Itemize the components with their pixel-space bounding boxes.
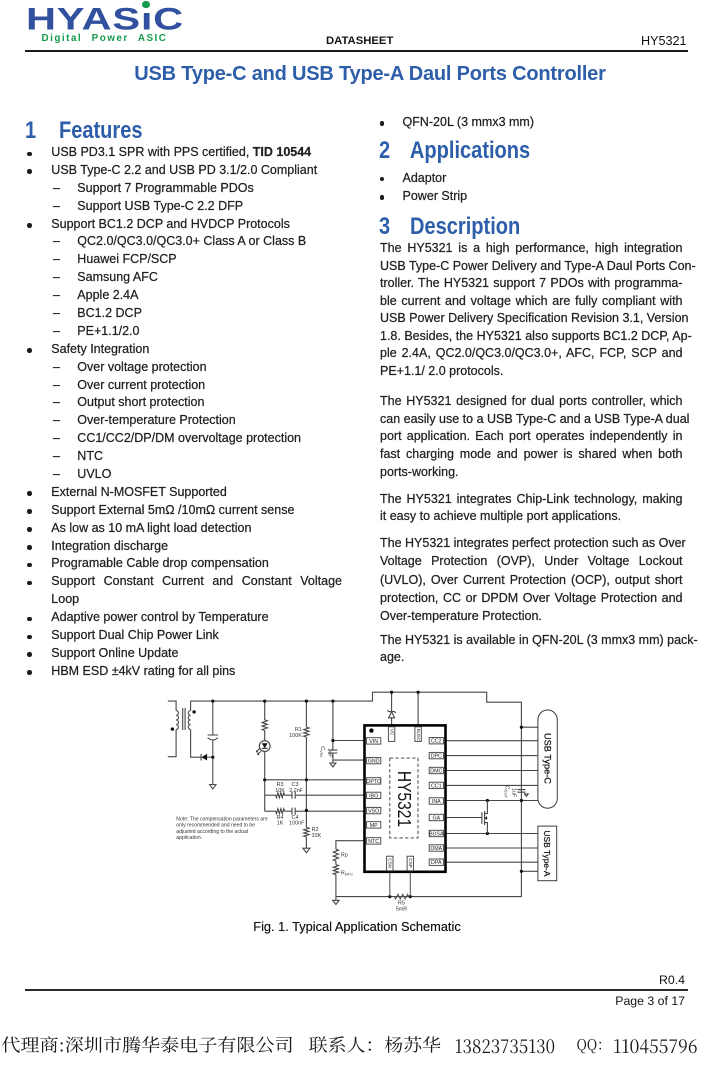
- svg-text:100nF: 100nF: [289, 821, 305, 827]
- svg-text:USB Type-C: USB Type-C: [543, 733, 553, 784]
- svg-text:1uF: 1uF: [511, 788, 517, 798]
- svg-text:R5: R5: [398, 900, 405, 906]
- svg-text:INA: INA: [432, 799, 441, 805]
- svg-text:HY5321: HY5321: [394, 771, 415, 827]
- svg-text:adjusted according to the actu: adjusted according to the actual: [176, 829, 248, 835]
- svg-text:VC: VC: [390, 729, 395, 736]
- svg-text:BUSA: BUSA: [429, 831, 444, 837]
- svg-text:1K: 1K: [277, 821, 284, 827]
- svg-text:DMA: DMA: [430, 846, 442, 852]
- svg-text:5mR: 5mR: [396, 907, 407, 913]
- svg-text:only recommended and need to: only recommended and need to be: [176, 823, 255, 829]
- svg-text:GND: GND: [368, 759, 380, 765]
- svg-text:RNTC: RNTC: [341, 871, 353, 877]
- svg-text:R2: R2: [312, 827, 319, 833]
- svg-text:CSN: CSN: [388, 858, 393, 868]
- svg-text:IBO: IBO: [369, 793, 378, 799]
- svg-text:Note: The compensation paramet: Note: The compensation parameters are: [176, 817, 268, 823]
- svg-text:100K: 100K: [289, 733, 302, 739]
- svg-text:33K: 33K: [312, 833, 322, 839]
- svg-text:NTC: NTC: [368, 839, 379, 845]
- svg-text:DMC: DMC: [430, 768, 442, 774]
- svg-text:application.: application.: [176, 835, 202, 841]
- svg-text:VIN: VIN: [369, 739, 378, 745]
- svg-text:Rp: Rp: [341, 853, 348, 859]
- svg-text:USB Type-A: USB Type-A: [542, 831, 552, 877]
- svg-text:2.2nF: 2.2nF: [289, 788, 303, 794]
- svg-text:OPTO: OPTO: [366, 779, 381, 785]
- svg-text:DPA: DPA: [431, 860, 442, 866]
- svg-text:CC2: CC2: [431, 739, 442, 745]
- svg-text:CSP: CSP: [408, 858, 413, 868]
- svg-text:MP: MP: [370, 823, 378, 829]
- svg-text:BUSC: BUSC: [416, 729, 421, 741]
- svg-text:1uF: 1uF: [326, 748, 332, 758]
- svg-text:R1: R1: [295, 727, 302, 733]
- svg-text:COUT: COUT: [504, 786, 510, 799]
- svg-text:CC1: CC1: [431, 783, 442, 789]
- svg-text:CVIN: CVIN: [319, 746, 325, 757]
- svg-text:10K: 10K: [275, 788, 285, 794]
- svg-text:GA: GA: [432, 815, 440, 821]
- svg-text:VSO: VSO: [368, 809, 379, 815]
- svg-text:DPC: DPC: [431, 754, 442, 760]
